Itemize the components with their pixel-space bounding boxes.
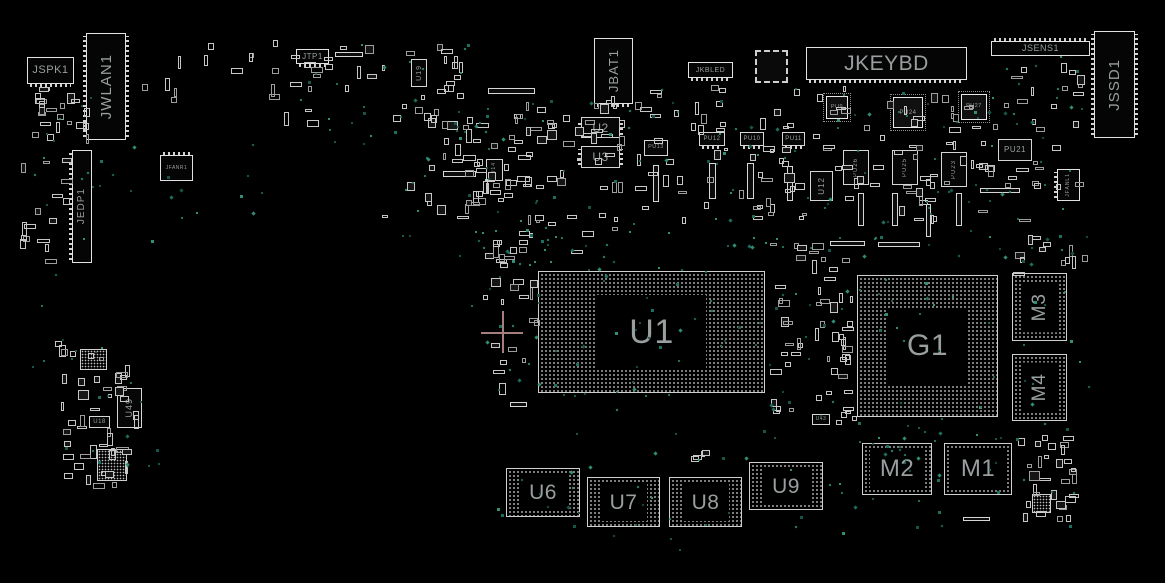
smd-part [536, 185, 544, 189]
smd-part [1033, 161, 1038, 165]
smd-part [775, 285, 786, 289]
smd-part [783, 126, 789, 129]
bar-component [653, 165, 659, 202]
smd-part [981, 141, 986, 146]
via-dot [633, 223, 635, 225]
via-dot [606, 244, 609, 247]
via-dot [784, 157, 787, 160]
via-dot [862, 254, 866, 258]
via-dot [101, 347, 103, 349]
smd-part [829, 267, 838, 272]
bar-component [878, 242, 920, 247]
smd-part [691, 123, 696, 131]
smd-part [614, 217, 618, 222]
smd-part [847, 321, 853, 327]
smd-part [1048, 443, 1056, 450]
via-dot [555, 236, 557, 238]
smd-part [1008, 176, 1017, 180]
pu26-label: PU26 [853, 158, 859, 177]
smd-part [1036, 511, 1046, 517]
via-dot [363, 106, 365, 108]
via-dot [720, 100, 723, 103]
smd-part [284, 112, 289, 126]
via-dot [252, 144, 255, 147]
smd-part [498, 198, 504, 202]
via-dot [824, 207, 826, 209]
pu12-pins [702, 146, 722, 149]
smd-part [972, 126, 981, 129]
via-dot [1022, 260, 1025, 263]
smd-part [111, 448, 115, 456]
via-dot [907, 425, 909, 427]
smd-part [103, 387, 112, 391]
jfanr1-label: JFANR1 [166, 166, 188, 171]
via-dot [148, 465, 150, 467]
smd-part [1051, 104, 1057, 109]
smd-part [760, 118, 766, 130]
via-dot [573, 525, 576, 528]
via-dot [918, 427, 920, 429]
smd-part [78, 390, 89, 400]
via-dot [370, 135, 372, 137]
smd-part [178, 56, 181, 69]
via-dot [645, 395, 647, 397]
via-dot [247, 175, 249, 177]
via-dot [588, 206, 591, 209]
via-dot [635, 524, 637, 526]
via-dot [554, 384, 557, 387]
via-dot [130, 382, 132, 384]
smd-part [844, 390, 853, 394]
smd-part [1026, 501, 1031, 508]
smd-part [43, 161, 50, 164]
smd-part [758, 172, 763, 178]
via-dot [482, 232, 484, 234]
smd-part [466, 200, 472, 206]
via-dot [808, 358, 810, 360]
smd-part [61, 402, 64, 411]
via-dot [732, 243, 736, 247]
smd-part [357, 66, 361, 79]
via-dot [661, 89, 664, 92]
smd-part [273, 40, 278, 47]
smd-part [442, 121, 448, 129]
jbat1-label: JBAT1 [607, 49, 620, 92]
smd-part [1077, 75, 1085, 85]
via-dot [1003, 111, 1007, 115]
smd-part [324, 57, 333, 61]
via-dot [62, 339, 65, 342]
via-dot [616, 391, 618, 393]
smd-part [783, 321, 793, 325]
smd-part [67, 121, 72, 125]
smd-part [830, 110, 838, 115]
smd-part [508, 147, 516, 152]
smd-part [466, 129, 472, 143]
smd-part [74, 463, 84, 470]
via-dot [886, 445, 889, 448]
via-dot [585, 245, 588, 248]
jwlan1: JWLAN1 [86, 33, 126, 140]
via-dot [810, 247, 812, 249]
via-dot [512, 260, 515, 263]
via-dot [658, 267, 660, 269]
via-dot [544, 249, 546, 251]
via-dot [71, 358, 74, 361]
smd-part [64, 473, 73, 479]
via-dot [614, 180, 617, 183]
jfanr1: JFANR1 [160, 155, 193, 181]
smd-part [781, 352, 788, 356]
smd-part [785, 362, 791, 367]
smd-part [720, 122, 726, 127]
via-dot [906, 115, 908, 117]
via-dot [520, 220, 522, 222]
u3-pins [578, 149, 581, 165]
via-dot [90, 97, 92, 99]
via-dot [537, 294, 540, 297]
u9-label: U9 [762, 468, 810, 505]
smd-part [406, 51, 415, 56]
jspk1-pins [30, 84, 71, 87]
via-dot [968, 201, 971, 204]
via-dot [112, 174, 115, 177]
jfanr1-pins [163, 152, 190, 155]
smd-part [1082, 255, 1088, 262]
smd-part [1062, 86, 1068, 91]
via-dot [550, 261, 552, 263]
smd-part [785, 343, 794, 346]
via-dot [1060, 56, 1062, 58]
u9: U9 [749, 462, 823, 510]
smd-part [782, 161, 789, 167]
smd-part [1027, 464, 1032, 468]
via-dot [308, 81, 311, 84]
via-dot [603, 256, 606, 259]
via-dot [872, 498, 874, 500]
via-dot [997, 491, 1000, 494]
via-dot [918, 500, 920, 502]
u19: U19 [411, 59, 427, 87]
smd-part [870, 183, 880, 187]
smd-part [1065, 257, 1070, 264]
smd-part [817, 94, 823, 102]
smd-part [841, 339, 846, 346]
via-dot [782, 246, 784, 248]
smd-part [1033, 492, 1040, 496]
via-dot [924, 431, 927, 434]
via-dot [749, 125, 753, 129]
smd-part [1028, 235, 1033, 245]
smd-part [467, 117, 473, 124]
via-dot [541, 240, 544, 243]
via-dot [716, 163, 719, 166]
smd-part [1035, 167, 1044, 170]
smd-part [290, 82, 302, 87]
smd-part [311, 67, 323, 73]
via-dot [535, 202, 538, 205]
u7-label: U7 [600, 484, 648, 521]
via-dot [394, 131, 397, 134]
smd-part [88, 353, 94, 359]
smd-part [340, 46, 347, 50]
via-dot [828, 249, 831, 252]
smd-part [365, 45, 374, 54]
smd-part [949, 127, 961, 133]
smd-part [953, 141, 956, 150]
smd-part [585, 120, 595, 125]
smd-part [80, 415, 85, 427]
smd-part [904, 106, 907, 115]
via-dot [988, 322, 990, 324]
smd-part [823, 145, 835, 149]
smd-part [308, 86, 312, 92]
smd-part [120, 396, 129, 402]
smd-part [519, 295, 529, 299]
via-dot [735, 128, 738, 131]
smd-part [454, 75, 461, 80]
via-dot [1061, 249, 1064, 252]
via-dot [715, 218, 717, 220]
via-dot [532, 103, 534, 105]
smd-part [942, 95, 949, 103]
via-dot [759, 322, 761, 324]
via-dot [547, 244, 549, 246]
smd-part [415, 107, 423, 114]
u3-pins [620, 149, 623, 165]
smd-part [1075, 182, 1084, 187]
u43-label: U43 [816, 417, 827, 422]
jkbled-pins [691, 78, 730, 81]
via-dot [941, 525, 944, 528]
via-dot [723, 152, 726, 155]
smd-part [493, 183, 500, 188]
smd-part [455, 144, 461, 156]
smd-part [1038, 456, 1042, 468]
smd-part [799, 216, 804, 220]
via-dot [156, 449, 159, 452]
via-dot [902, 92, 905, 95]
smd-part [45, 259, 57, 264]
smd-part [530, 280, 538, 288]
smd-part [816, 302, 822, 306]
via-dot [517, 378, 521, 382]
via-dot [1070, 340, 1073, 343]
m3: M3 [1012, 273, 1067, 341]
smd-part [61, 179, 73, 184]
smd-part [582, 231, 594, 237]
smd-part [519, 240, 528, 245]
smd-part [491, 143, 498, 149]
smd-part [704, 202, 709, 209]
via-dot [613, 535, 616, 538]
via-dot [928, 244, 931, 247]
jsens1: JSENS1 [991, 41, 1090, 56]
via-dot [132, 145, 136, 149]
smd-part [249, 53, 253, 62]
smd-part [899, 206, 905, 216]
smd-part [719, 88, 726, 93]
via-dot [1044, 304, 1046, 306]
smd-part [612, 182, 617, 193]
smd-part [842, 165, 853, 170]
smd-part [37, 239, 50, 243]
smd-part [547, 120, 554, 125]
via-dot [1076, 70, 1079, 73]
via-dot [993, 376, 995, 378]
via-dot [782, 391, 785, 394]
via-dot [99, 185, 101, 187]
via-dot [885, 313, 888, 316]
smd-part [599, 213, 606, 218]
smd-part [789, 408, 794, 412]
via-dot [1035, 65, 1038, 68]
u8-label: U8 [682, 484, 730, 521]
smd-part [1073, 121, 1079, 128]
smd-part [20, 239, 26, 249]
smd-part [116, 372, 128, 378]
via-dot [485, 131, 488, 134]
via-dot [827, 203, 830, 206]
smd-part [791, 352, 801, 356]
via-dot [1000, 437, 1003, 440]
via-dot [782, 294, 785, 297]
smd-part [457, 93, 464, 99]
via-dot [475, 231, 477, 233]
via-dot [125, 434, 129, 438]
smd-part [1021, 67, 1027, 73]
via-dot [927, 103, 930, 106]
pu10: PU10 [740, 132, 764, 146]
smd-part [816, 395, 822, 401]
via-dot [829, 484, 832, 487]
smd-part [567, 215, 577, 219]
via-dot [1032, 383, 1034, 385]
smd-part [62, 374, 67, 384]
smd-part [112, 482, 117, 488]
via-dot [329, 129, 331, 131]
via-dot [1079, 361, 1081, 363]
smd-part [946, 142, 953, 145]
via-dot [459, 255, 461, 257]
smd-part [1064, 459, 1072, 464]
smd-part [842, 346, 853, 353]
smd-part [272, 68, 279, 74]
via-dot [1056, 97, 1058, 99]
via-dot [1081, 108, 1083, 110]
via-dot [956, 121, 959, 124]
via-dot [941, 418, 944, 421]
smd-part [842, 258, 850, 263]
via-dot [651, 309, 654, 312]
smd-part [291, 55, 300, 59]
smd-part [784, 173, 795, 183]
via-dot [995, 438, 997, 440]
smd-part [483, 295, 488, 300]
smd-part [497, 240, 502, 245]
smd-part [617, 144, 622, 151]
via-dot [336, 83, 338, 85]
via-dot [553, 196, 556, 199]
via-dot [991, 145, 993, 147]
via-dot [98, 396, 101, 399]
via-dot [402, 235, 404, 237]
smd-part [491, 278, 501, 287]
smd-part [1052, 145, 1061, 151]
bar-component [892, 193, 898, 226]
smd-part [517, 176, 530, 182]
via-dot [837, 127, 839, 129]
via-dot [943, 126, 946, 129]
smd-part [56, 122, 60, 133]
smd-part [325, 64, 333, 70]
smd-part [1069, 70, 1076, 75]
smd-part [1056, 184, 1061, 190]
via-dot [545, 227, 548, 230]
smd-part [474, 162, 480, 167]
smd-part [988, 166, 994, 177]
smd-part [739, 190, 744, 199]
smd-part [812, 260, 817, 274]
via-dot [361, 44, 363, 46]
smd-part [174, 88, 177, 97]
via-dot [417, 210, 419, 212]
jspk1: JSPK1 [27, 57, 74, 84]
pu23-label: PU23 [951, 160, 957, 179]
via-dot [578, 512, 580, 514]
via-dot [974, 111, 977, 114]
via-dot [823, 324, 826, 327]
smd-part [78, 378, 85, 386]
smd-part [864, 125, 870, 131]
via-dot [589, 101, 593, 105]
via-dot [728, 218, 732, 222]
smd-part [842, 327, 854, 331]
smd-part [94, 376, 100, 383]
smd-part [1073, 92, 1084, 96]
smd-part [960, 156, 967, 166]
via-dot [65, 447, 68, 450]
jssd1: JSSD1 [1094, 31, 1135, 138]
smd-part [618, 182, 623, 193]
smd-part [619, 120, 625, 128]
via-dot [668, 232, 670, 234]
smd-part [663, 175, 669, 187]
jkeybd: JKEYBD [806, 47, 967, 80]
via-dot [750, 245, 754, 249]
via-dot [874, 238, 877, 241]
jfanl1-label: JFANL1 [1066, 173, 1071, 197]
via-dot [837, 119, 840, 122]
smd-part [271, 84, 275, 97]
via-dot [795, 526, 798, 529]
via-dot [1003, 255, 1007, 259]
via-dot [775, 127, 779, 131]
via-dot [864, 172, 866, 174]
smd-part [575, 127, 584, 136]
smd-part [504, 193, 513, 198]
u6-label: U6 [519, 474, 567, 511]
via-dot [41, 305, 43, 307]
smd-part [99, 357, 104, 361]
smd-part [382, 215, 388, 218]
via-dot [854, 114, 857, 117]
smd-part [504, 164, 509, 171]
via-dot [727, 245, 730, 248]
via-dot [1017, 218, 1019, 220]
via-dot [550, 100, 553, 103]
smd-part [537, 136, 547, 144]
